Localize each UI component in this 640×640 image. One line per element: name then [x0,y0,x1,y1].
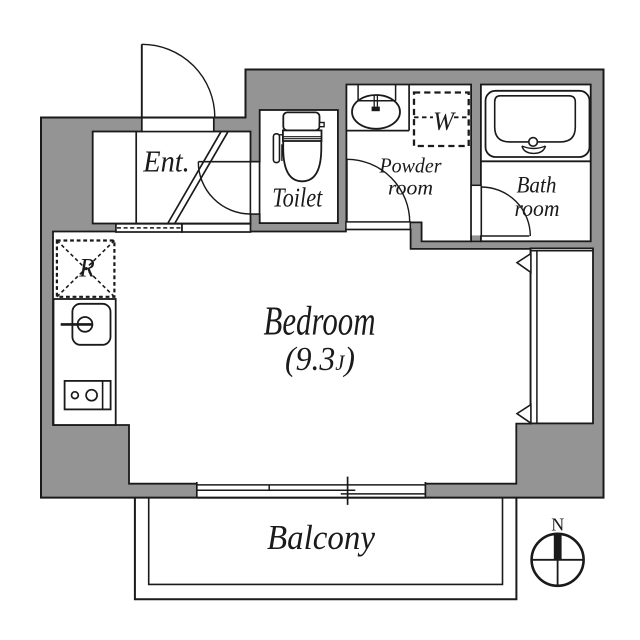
svg-text:Bath: Bath [517,173,557,198]
svg-text:R: R [78,253,95,282]
svg-text:room: room [515,196,560,221]
svg-text:room: room [388,176,433,200]
svg-text:(9.3J): (9.3J) [285,341,355,378]
svg-text:N: N [551,515,564,535]
svg-text:Bedroom: Bedroom [264,297,376,343]
svg-text:Toilet: Toilet [272,183,323,213]
svg-text:Ent.: Ent. [142,144,189,179]
svg-text:Powder: Powder [379,153,443,177]
svg-text:Balcony: Balcony [267,518,375,557]
svg-text:W: W [433,107,456,136]
